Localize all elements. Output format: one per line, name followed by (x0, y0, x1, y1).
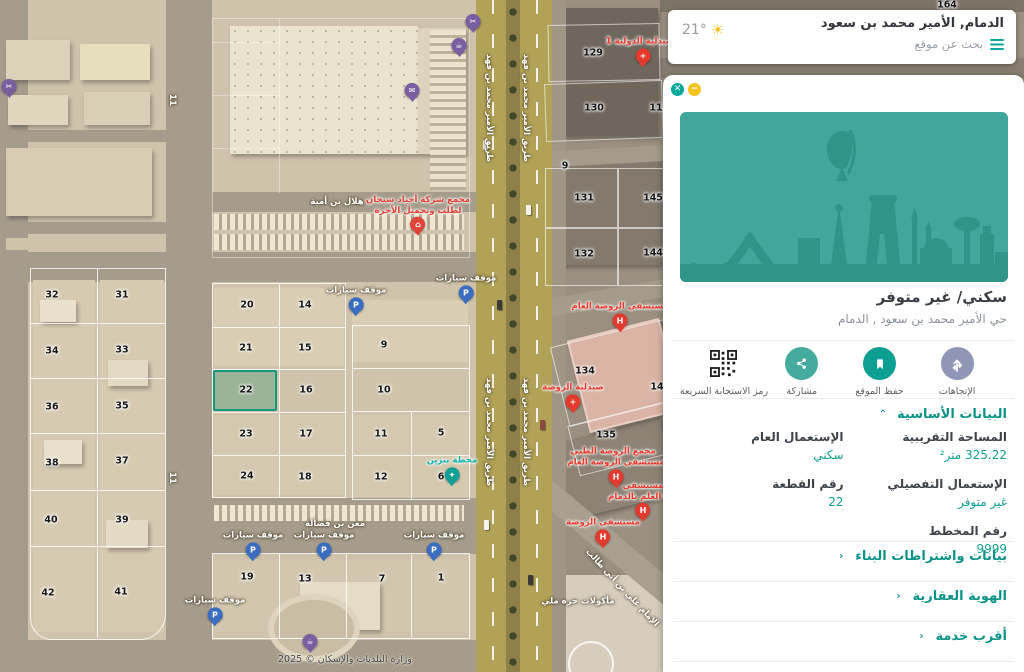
parcel-grid (279, 553, 280, 639)
pin-glyph: H (613, 472, 620, 481)
map-poi[interactable]: مجمع شركة أجياد سيجان لطلب وتحميل الأجرة… (366, 195, 470, 240)
parcel-label[interactable]: 21 (239, 343, 252, 354)
parcel-grid (346, 553, 347, 639)
poi-label: محطة بنزين (427, 455, 478, 466)
field-area: المساحة التقريبية 325.22 متر² (844, 430, 1008, 462)
street-label: 11 (167, 472, 177, 484)
street-label: طريق الأمير محمد بن فهد (484, 54, 494, 162)
map-building (6, 238, 152, 250)
qr-code-button[interactable]: رمز الاستجابة السريعة (685, 347, 763, 409)
parcel-label[interactable]: 22 (239, 385, 252, 396)
temperature-value: 21° (682, 22, 707, 38)
parcel-label[interactable]: 31 (115, 290, 128, 301)
pin-tail (455, 52, 463, 61)
street-label: طريق الأمير محمد بن فهد (484, 378, 494, 486)
poi-pin-icon[interactable]: P (348, 297, 363, 312)
parcel-label[interactable]: 5 (438, 428, 445, 439)
poi-pin-icon[interactable]: ✦ (444, 467, 459, 482)
field-value: سكني (680, 448, 844, 462)
parcel-label[interactable]: 130 (584, 103, 604, 114)
field-general-use: الإستعمال العام سكني (680, 430, 844, 462)
divider (673, 541, 1014, 542)
parcel-label[interactable]: 12 (374, 472, 387, 483)
map-lane-line (536, 0, 538, 672)
share-button[interactable]: مشاركة (763, 347, 841, 409)
menu-icon[interactable] (990, 39, 1004, 50)
close-button[interactable]: ✕ (671, 83, 684, 96)
directions-icon (941, 347, 974, 380)
street-label: طريق الأمير محمد بن فهد (521, 378, 531, 486)
parcel-grid (212, 95, 280, 96)
poi-label: صيدلية الروضة (542, 382, 603, 393)
parcel-label[interactable]: 41 (114, 587, 127, 598)
parcel-label[interactable]: 39 (115, 515, 128, 526)
poi-label: موقف سيارات (185, 595, 246, 606)
map-poi[interactable]: صيدلية الروضة+ (542, 382, 603, 417)
car (540, 420, 545, 430)
map-poi[interactable]: ☕ (452, 38, 467, 61)
parcel-label[interactable]: 32 (45, 290, 58, 301)
pin-glyph: ✂ (6, 82, 13, 91)
parcel-label[interactable]: 36 (45, 402, 58, 413)
car (526, 205, 531, 215)
pin-glyph: ☕ (455, 41, 462, 50)
parcel-details-panel: ✕ − (663, 75, 1024, 672)
parcel-label[interactable]: 132 (574, 249, 594, 260)
car (528, 575, 533, 585)
map-building (80, 44, 150, 80)
share-icon (785, 347, 818, 380)
poi-pin-icon[interactable]: P (245, 542, 260, 557)
field-label: رقم القطعة (680, 477, 844, 491)
map-poi[interactable]: محطة بنزين✦ (427, 455, 478, 490)
pin-glyph: P (212, 610, 218, 619)
district-address: حي الأمير محمد بن سعود , الدمام (838, 312, 1007, 326)
pin-glyph: H (600, 532, 607, 541)
parcel-label[interactable]: 11 (649, 103, 662, 114)
street-label: معن بن فضالة (305, 519, 365, 529)
parcel-grid (30, 490, 166, 491)
poi-pin-icon[interactable]: P (316, 542, 331, 557)
pin-tail (462, 299, 470, 308)
parcel-label[interactable]: 10 (377, 385, 390, 396)
parcel-label[interactable]: 16 (299, 385, 312, 396)
poi-pin-icon[interactable]: ✂ (466, 14, 481, 29)
map-poi[interactable]: موقف سياراتP (294, 530, 355, 565)
map-building (6, 148, 152, 216)
poi-label: مجمع شركة أجياد سيجان لطلب وتحميل الأجرة (366, 195, 470, 216)
parcel-grid (352, 368, 470, 369)
car (497, 300, 502, 310)
parcel-label[interactable]: 17 (299, 429, 312, 440)
parcel-grid (212, 327, 346, 328)
parcel-grid (279, 18, 280, 193)
field-label: رقم المخطط (844, 524, 1008, 538)
pin-tail (639, 62, 647, 71)
divider (673, 661, 1014, 662)
poi-pin-icon[interactable]: ☕ (452, 38, 467, 53)
pin-tail (408, 97, 416, 106)
chevron-up-icon: ⌃ (879, 409, 887, 420)
parcel-label[interactable]: 9 (381, 340, 388, 351)
parcel-grid (352, 411, 470, 412)
action-label: حفظ الموقع (855, 386, 903, 397)
parcel-label[interactable]: 145 (643, 193, 663, 204)
poi-pin-icon[interactable]: H (595, 529, 610, 544)
parcel-label[interactable]: 144 (643, 248, 663, 259)
parcel-label[interactable]: 40 (44, 515, 57, 526)
pin-glyph: P (250, 545, 256, 554)
poi-label: موقف سيارات (436, 273, 497, 284)
pin-tail (249, 556, 257, 565)
parcel-label[interactable]: 20 (240, 300, 253, 311)
action-label: رمز الاستجابة السريعة (680, 386, 768, 397)
parcel-label[interactable]: 33 (115, 345, 128, 356)
parcel-grid (30, 378, 166, 379)
app-screen: 3231343336353837403942412014211522162317… (0, 0, 1024, 672)
pin-tail (414, 231, 422, 240)
pin-tail (469, 28, 477, 37)
pin-glyph: ✦ (449, 470, 456, 479)
parcel-grid (212, 148, 280, 149)
bookmark-icon (863, 347, 896, 380)
pin-tail (599, 543, 607, 552)
parcel-label[interactable]: 42 (41, 588, 54, 599)
field-parcel-number: رقم القطعة 22 (680, 477, 844, 509)
poi-pin-icon[interactable]: ⌂ (410, 217, 425, 232)
poi-label: مستشفى الروضة العام (571, 301, 668, 312)
poi-pin-icon[interactable]: ✂ (2, 79, 17, 94)
map-poi[interactable]: مستشفى الروضة العامH (571, 301, 668, 336)
pin-glyph: ☕ (306, 637, 313, 646)
field-detailed-use: الإستعمال التفصيلي غير متوفر (844, 477, 1008, 509)
map-building (84, 92, 150, 125)
poi-label: مأكولات حره ملي (541, 596, 614, 607)
street-label: طريق الأمير محمد بن فهد (521, 54, 531, 162)
section-title: أقرب خدمة (936, 629, 1007, 644)
field-value: 22 (680, 495, 844, 509)
parcel-grid (279, 283, 280, 498)
map-poi[interactable]: موقف سياراتP (326, 285, 387, 320)
street-label: هلال بن أمية (310, 197, 363, 207)
pin-tail (5, 93, 13, 102)
street-label: 11 (167, 94, 177, 106)
poi-label: مستشفى الروضة (566, 517, 640, 528)
minimize-button[interactable]: − (688, 83, 701, 96)
parcel-label[interactable]: 1 (438, 573, 445, 584)
parcel-grid (30, 433, 166, 434)
divider (673, 581, 1014, 582)
map-poi[interactable]: ✉ (405, 83, 420, 106)
map-poi[interactable]: مجمع الروضة الطبي (570, 446, 655, 458)
pin-tail (211, 621, 219, 630)
parcel-label[interactable]: 38 (45, 458, 58, 469)
parcel-grid (30, 546, 166, 547)
poi-pin-icon[interactable]: P (207, 607, 222, 622)
field-label: الإستعمال التفصيلي (844, 477, 1008, 491)
map-watermark: وزارة البلديات والإسكان © 2025 (278, 654, 412, 665)
divider (673, 398, 1014, 399)
map-poi[interactable]: ✂ (466, 14, 481, 37)
weather-widget: 21° ☀ (682, 22, 724, 38)
basic-data-header[interactable]: البيانات الأساسية ⌃ (879, 407, 1007, 422)
parcel-label[interactable]: 7 (379, 574, 386, 585)
pin-tail (569, 408, 577, 417)
parcel-label[interactable]: 19 (240, 572, 253, 583)
pin-glyph: P (321, 545, 327, 554)
poi-pin-icon[interactable]: + (565, 394, 580, 409)
poi-pin-icon[interactable]: + (635, 48, 650, 63)
parcel-label[interactable]: 24 (240, 471, 253, 482)
pin-glyph: P (463, 288, 469, 297)
save-location-button[interactable]: حفظ الموقع (841, 347, 919, 409)
parcel-label[interactable]: 37 (115, 456, 128, 467)
parcel-grid (411, 553, 412, 639)
parcel-grid (212, 553, 470, 639)
poi-pin-icon[interactable]: ✉ (405, 83, 420, 98)
map-building (8, 95, 68, 125)
poi-label: موقف سيارات (326, 285, 387, 296)
directions-button[interactable]: الإتجاهات (918, 347, 996, 409)
pin-glyph: H (617, 316, 624, 325)
map-poi[interactable]: ✂ (2, 79, 17, 102)
section-title: الهوية العقارية (912, 589, 1007, 604)
pin-glyph: ✉ (409, 86, 416, 95)
search-box[interactable]: بحث عن موقع (680, 37, 1004, 51)
field-value: غير متوفر (844, 495, 1008, 509)
poi-pin-icon[interactable]: P (426, 542, 441, 557)
poi-label: مستشفى الروضة العام (567, 457, 664, 468)
parcel-label[interactable]: 23 (239, 429, 252, 440)
pin-tail (352, 311, 360, 320)
pin-tail (320, 556, 328, 565)
parcel-label[interactable]: 34 (45, 346, 58, 357)
district-illustration (680, 112, 1008, 282)
field-label: الإستعمال العام (680, 430, 844, 444)
parcel-grid (212, 42, 280, 43)
pin-glyph: + (570, 397, 577, 406)
map-road (0, 222, 166, 234)
action-bar: الإتجاهات حفظ الموقع مشاركة (663, 347, 1024, 409)
field-label: المساحة التقريبية (844, 430, 1008, 444)
parcel-label[interactable]: 15 (298, 343, 311, 354)
basic-data-title: البيانات الأساسية (897, 407, 1007, 422)
parcel-grid (212, 455, 346, 456)
chevron-left-icon: ‹ (839, 551, 843, 562)
section-building-requirements[interactable]: بيانات واشتراطات البناء ‹ (839, 549, 1007, 564)
poi-pin-icon[interactable]: H (612, 313, 627, 328)
usage-title: سكني/ غير متوفر (877, 288, 1007, 306)
poi-label: موقف سيارات (404, 530, 465, 541)
chevron-left-icon: ‹ (919, 631, 923, 642)
pin-glyph: ⌂ (415, 220, 421, 229)
qr-icon (707, 347, 740, 380)
poi-pin-icon[interactable]: P (458, 285, 473, 300)
search-input[interactable]: بحث عن موقع (914, 37, 983, 51)
section-title: بيانات واشتراطات البناء (855, 549, 1007, 564)
map-poi[interactable]: مستشفى الروضةH (566, 517, 640, 552)
map-poi[interactable]: موقف سياراتP (404, 530, 465, 565)
map-road (0, 130, 166, 142)
skyline-illustration (680, 112, 1008, 282)
parcel-label[interactable]: 14 (298, 300, 311, 311)
pin-tail (616, 327, 624, 336)
parcel-label[interactable]: 164 (937, 0, 957, 11)
pin-glyph: P (353, 300, 359, 309)
section-nearest-service[interactable]: أقرب خدمة ‹ (919, 629, 1007, 644)
pin-glyph: P (431, 545, 437, 554)
parcel-grid (212, 412, 346, 413)
map-highway-median (506, 0, 520, 672)
parcel-label[interactable]: 131 (574, 193, 594, 204)
parcel-label[interactable]: 18 (298, 472, 311, 483)
pin-tail (448, 481, 456, 490)
pin-tail (639, 517, 647, 526)
map-poi[interactable]: مأكولات حره ملي (541, 596, 614, 608)
parcel-label[interactable]: 129 (583, 48, 603, 59)
poi-label: مجمع الروضة الطبي (570, 446, 655, 457)
map-building (6, 40, 70, 80)
poi-pin-icon[interactable]: ☕ (303, 634, 318, 649)
poi-label: موقف سيارات (294, 530, 355, 541)
pin-tail (430, 556, 438, 565)
map-poi[interactable]: موقف سياراتP (223, 530, 284, 565)
parcel-label[interactable]: 134 (575, 366, 595, 377)
pin-glyph: H (640, 506, 647, 515)
sun-icon: ☀ (711, 23, 724, 38)
parcel-label[interactable]: 13 (298, 574, 311, 585)
parcel-label[interactable]: 11 (374, 429, 387, 440)
map-poi[interactable]: موقف سياراتP (436, 273, 497, 308)
car (484, 520, 489, 530)
parcel-label[interactable]: 14 (650, 382, 663, 393)
action-label: مشاركة (786, 386, 817, 397)
action-label: الإتجاهات (939, 386, 976, 397)
map-poi[interactable]: موقف سياراتP (185, 595, 246, 630)
location-title: الدمام, الأمير محمد بن سعود (680, 16, 1004, 31)
pin-glyph: ✂ (470, 17, 477, 26)
section-property-identity[interactable]: الهوية العقارية ‹ (896, 589, 1007, 604)
divider (673, 621, 1014, 622)
parcel-label[interactable]: 35 (115, 401, 128, 412)
basic-data-fields: المساحة التقريبية 325.22 متر² الإستعمال … (663, 430, 1024, 556)
pin-glyph: + (640, 51, 647, 60)
poi-label: موقف سيارات (223, 530, 284, 541)
parcel-label[interactable]: 135 (596, 430, 616, 441)
parcel-label[interactable]: 9 (562, 161, 569, 172)
divider (673, 340, 1014, 341)
poi-pin-icon[interactable]: H (636, 503, 651, 518)
search-card: الدمام, الأمير محمد بن سعود بحث عن موقع … (668, 10, 1016, 64)
chevron-left-icon: ‹ (896, 591, 900, 602)
parcel-grid (30, 323, 166, 324)
field-value: 325.22 متر² (844, 448, 1008, 462)
